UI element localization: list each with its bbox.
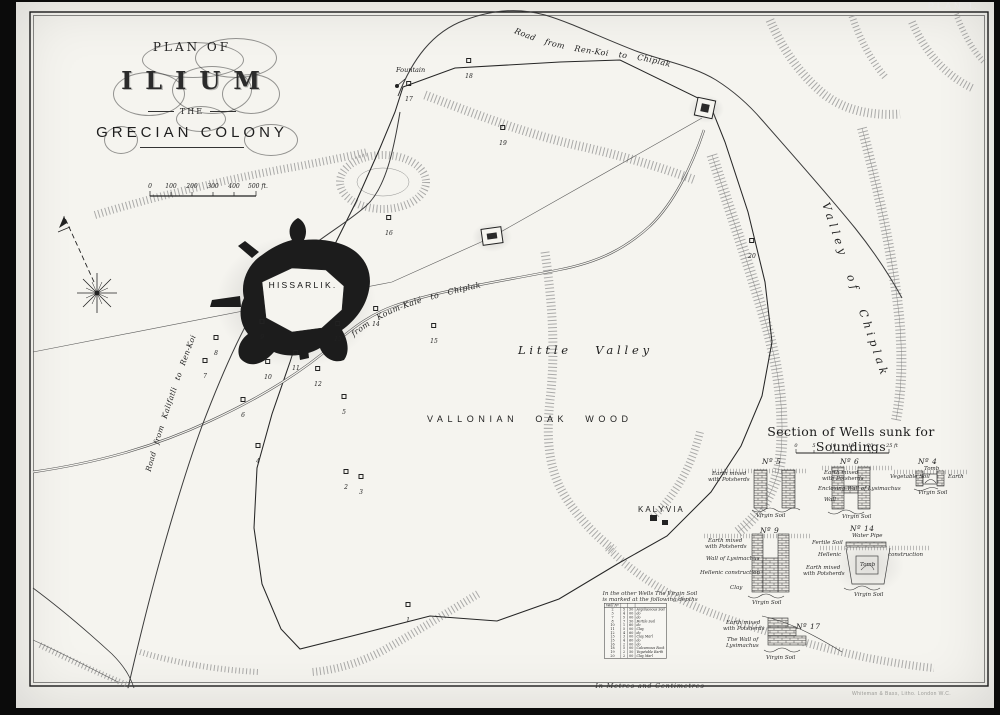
well-section-no-5: Nº 5 [762,457,781,466]
well14-label: construction [888,552,923,558]
compass-rose [58,216,117,313]
well14-label: Fertile Soil [812,540,843,546]
ridge-crest-lines [357,128,901,532]
well-section-no-14: Nº 14 [850,524,875,533]
scale-tick: 0 [148,183,152,190]
well-section-no-17: Nº 17 [796,622,821,631]
well6-label: Wall [824,497,836,503]
well-marker: 9 [260,319,265,343]
road-label-kalifatli: Road from Kalifatli to Ren-Koi [144,333,198,473]
kalyvia-label: KALYVIA [638,505,685,514]
well-marker: 19 [499,125,507,149]
well-marker: 18 [465,58,473,82]
well-marker: 4 [256,443,261,467]
oak-wood-label: VALLONIAN OAK WOOD [427,414,633,424]
fort-northeast [688,95,724,123]
well14-virgin-soil: Virgin Soil [854,592,883,598]
well4-label: Earth [948,474,964,480]
fort-middle [472,222,512,252]
well-marker: 20 [748,238,756,262]
depth-table-footer: In Metres and Centimetres [590,682,710,690]
well-section-no-9: Nº 9 [760,526,779,535]
well9-label: with Potsherds [705,544,747,550]
well17-virgin-soil: Virgin Soil [766,655,795,661]
well9-label: Wall of Lysimachus [706,556,760,562]
well17-label: Lysimachus [726,643,759,649]
well4-label: Tomb [924,466,939,472]
main-scale-bar: 0 100 200 300 400 500 ft. [148,183,268,196]
well4-virgin-soil: Virgin Soil [918,490,947,496]
depth-table-intro: In the other Wells The Virgin Soil is ma… [594,591,706,604]
scale-tick: 300 [207,183,219,190]
well-marker: 10 [264,359,272,383]
hissarlik-label: HISSARLIK. [269,280,338,290]
well9-label: Hellenic construction [700,570,760,576]
road-renkoi-path [398,11,902,298]
well4-label: Vegetable Soil [890,474,930,480]
fountain-label: Fountain [396,66,425,74]
well17-label: with Potsherds [723,626,765,632]
scale-tick: 200 [185,183,198,190]
scale-tick: 400 [227,183,240,190]
scanned-map-page: { "page": { "plate_label": "PLAN I.", "p… [0,0,1000,715]
well-marker: 6 [241,397,246,421]
well-marker: 16 [385,215,393,239]
well-marker: 3 [359,474,364,498]
well-marker: 17 [405,81,413,105]
well9-label: Clay [730,585,742,591]
title-line-grecian-colony: GRECIAN COLONY [92,124,292,141]
title-dash-right [210,111,236,112]
well6-label: Enclosing Wall of Lysimachus [818,486,901,492]
title-line-plan-of: PLAN OF [92,40,292,54]
scale-tick: 100 [165,183,177,190]
title-dash-left [148,111,174,112]
printer-credit: Whiteman & Bass, Litho. London W.C. [852,691,951,697]
depth-table: Well Nº 2550Argillaceous Soil3400do7500d… [604,603,667,659]
well-marker: 14 [372,306,380,330]
well5-label: with Potsherds [708,477,750,483]
well-marker: 13 [334,321,342,345]
well-marker: 12 [314,366,322,390]
road-southwest-path [33,588,134,688]
title-line-ilium: ILIUM [92,66,292,95]
svg-text:Road from Kalifatli to Ren-Koi: Road from Kalifatli to Ren-Koi [144,333,198,473]
depth-table-rows: 2550Argillaceous Soil3400do7500do8750Fer… [605,608,667,658]
hissarlik-mound: HISSARLIK. [210,218,376,368]
well-marker: 7 [203,358,208,382]
well-marker: 15 [430,323,438,347]
well6-label: with Potsherds [822,476,864,482]
little-valley-label: Little Valley [517,343,653,357]
title-underline [140,147,244,148]
well14-label: with Potsherds [803,571,845,577]
well-section-no-4: Nº 4 [918,457,937,466]
well14-label: Water Pipe [852,533,883,539]
well-marker: 11 [292,350,300,374]
wells-section-title: Section of Wells sunk for Soundings [750,424,952,454]
title-line-the: THE [174,107,210,116]
well14-label: Hellenic [818,552,841,558]
well6-virgin-soil: Virgin Soil [842,514,871,520]
well5-virgin-soil: Virgin Soil [756,513,785,519]
stream-path [33,640,118,682]
well9-virgin-soil: Virgin Soil [752,600,781,606]
well-marker: 1 [406,602,411,626]
well-marker: 2 [344,469,349,493]
well-section-no-6: Nº 6 [840,457,859,466]
well-marker: 8 [214,335,219,359]
scale-tick: 500 ft. [248,183,268,190]
title-line-the-row: THE [92,107,292,116]
table-row: 20200Clay Marl [605,654,667,658]
map-title-block: PLAN OF ILIUM THE GRECIAN COLONY [92,40,292,148]
well-marker: 5 [342,394,347,418]
well14-tomb-label: Tomb [860,562,875,568]
